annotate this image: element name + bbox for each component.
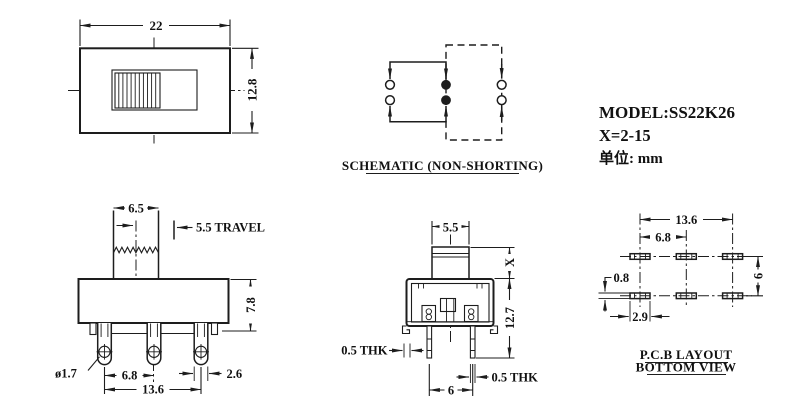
dim-thk-bottom-label: 0.5 THK: [492, 371, 539, 385]
dim-2-6-label: 2.6: [227, 367, 243, 381]
dimension-pad-width-2-9: 2.9: [610, 301, 670, 324]
bottom-connection-line: [390, 106, 446, 122]
dimension-travel-5-5: 5.5 TRAVEL: [117, 221, 266, 240]
dim-travel-label: 5.5 TRAVEL: [196, 221, 265, 235]
terminal-open-2: [386, 96, 395, 105]
moving-contact-dashed-box: [446, 45, 502, 140]
dimension-knob-width-6-5: 6.5: [114, 201, 159, 216]
dim-thk-left-label: 0.5 THK: [341, 344, 388, 358]
x-range: X=2-15: [599, 126, 651, 145]
dim-0-8-label: 0.8: [614, 271, 630, 285]
dimension-terminal-width-2-6: 2.6: [179, 367, 242, 382]
side-stem: [432, 247, 469, 279]
side-view: 5.5 X: [341, 220, 538, 398]
dimension-pcb-pitch-6-8: 6.8: [640, 230, 686, 245]
cover-foot-right: [491, 326, 498, 334]
dimension-pin-thickness: 0.5 THK: [457, 364, 539, 385]
dimension-pcb-row-pitch-6: 6: [746, 257, 766, 296]
pcb-view: 13.6 6.8 6 0.8 2.9: [599, 212, 766, 375]
terminal-open-3: [497, 80, 506, 89]
dim-6-5-label: 6.5: [128, 202, 144, 216]
dimension-stem-height-x: X: [471, 248, 518, 279]
dim-pcb-6-label: 6: [752, 273, 766, 279]
pcb-caption-line2: BOTTOM VIEW: [636, 360, 737, 375]
model-number: MODEL:SS22K26: [599, 103, 735, 122]
cover-foot-left: [403, 326, 410, 334]
front-terminals: [90, 323, 218, 365]
dim-22-label: 22: [150, 18, 163, 33]
dim-12-7-label: 12.7: [503, 307, 517, 329]
front-body-outline: [79, 279, 229, 323]
mounting-lug-right: [212, 323, 218, 335]
dim-6-8-label: 6.8: [122, 369, 138, 383]
dim-pcb-13-6-label: 13.6: [675, 213, 697, 227]
dim-6-label: 6: [448, 384, 454, 398]
dimension-pcb-span-13-6: 13.6: [640, 212, 733, 227]
model-info: MODEL:SS22K26 X=2-15 单位: mm: [599, 103, 735, 167]
dim-12-8-label: 12.8: [245, 78, 260, 101]
dim-hole-label: ø1.7: [55, 367, 77, 381]
top-connection-line: [390, 62, 446, 79]
side-body-outline: [407, 279, 494, 326]
technical-drawing-sheet: 22 12.8 SCHEMATIC (NON-SHORTING) MODEL:S…: [0, 0, 800, 420]
schematic-caption: SCHEMATIC (NON-SHORTING): [342, 158, 543, 173]
dimension-cover-thickness: 0.5 THK: [341, 344, 423, 358]
dim-pcb-6-8-label: 6.8: [655, 231, 671, 245]
mounting-lug-left: [90, 323, 96, 335]
units-note: 单位: mm: [599, 149, 663, 167]
dimension-pin-gap-6: 6: [429, 364, 472, 398]
slider-knob: [115, 73, 160, 108]
dimension-height-12-8: 12.8: [232, 48, 260, 133]
drawing-canvas: 22 12.8 SCHEMATIC (NON-SHORTING) MODEL:S…: [0, 0, 800, 420]
schematic-view: SCHEMATIC (NON-SHORTING): [342, 45, 543, 174]
terminal-holes: [97, 344, 210, 360]
dim-13-6-label: 13.6: [142, 383, 164, 397]
dimension-hole-dia: ø1.7: [55, 357, 100, 381]
top-view: 22 12.8: [68, 18, 260, 144]
dim-7-8-label: 7.8: [244, 297, 258, 313]
dimension-pad-height-0-8: 0.8: [599, 271, 631, 312]
terminal-closed-2: [441, 95, 451, 105]
terminal-closed-1: [441, 80, 451, 90]
dim-5-5-label: 5.5: [443, 221, 459, 235]
dim-x-label: X: [503, 258, 517, 267]
terminal-open-4: [497, 96, 506, 105]
dimension-width-22: 22: [80, 18, 230, 47]
terminal-open-1: [386, 80, 395, 89]
front-view: 6.5 5.5 TRAVEL: [55, 201, 265, 397]
dim-2-9-label: 2.9: [632, 310, 648, 324]
